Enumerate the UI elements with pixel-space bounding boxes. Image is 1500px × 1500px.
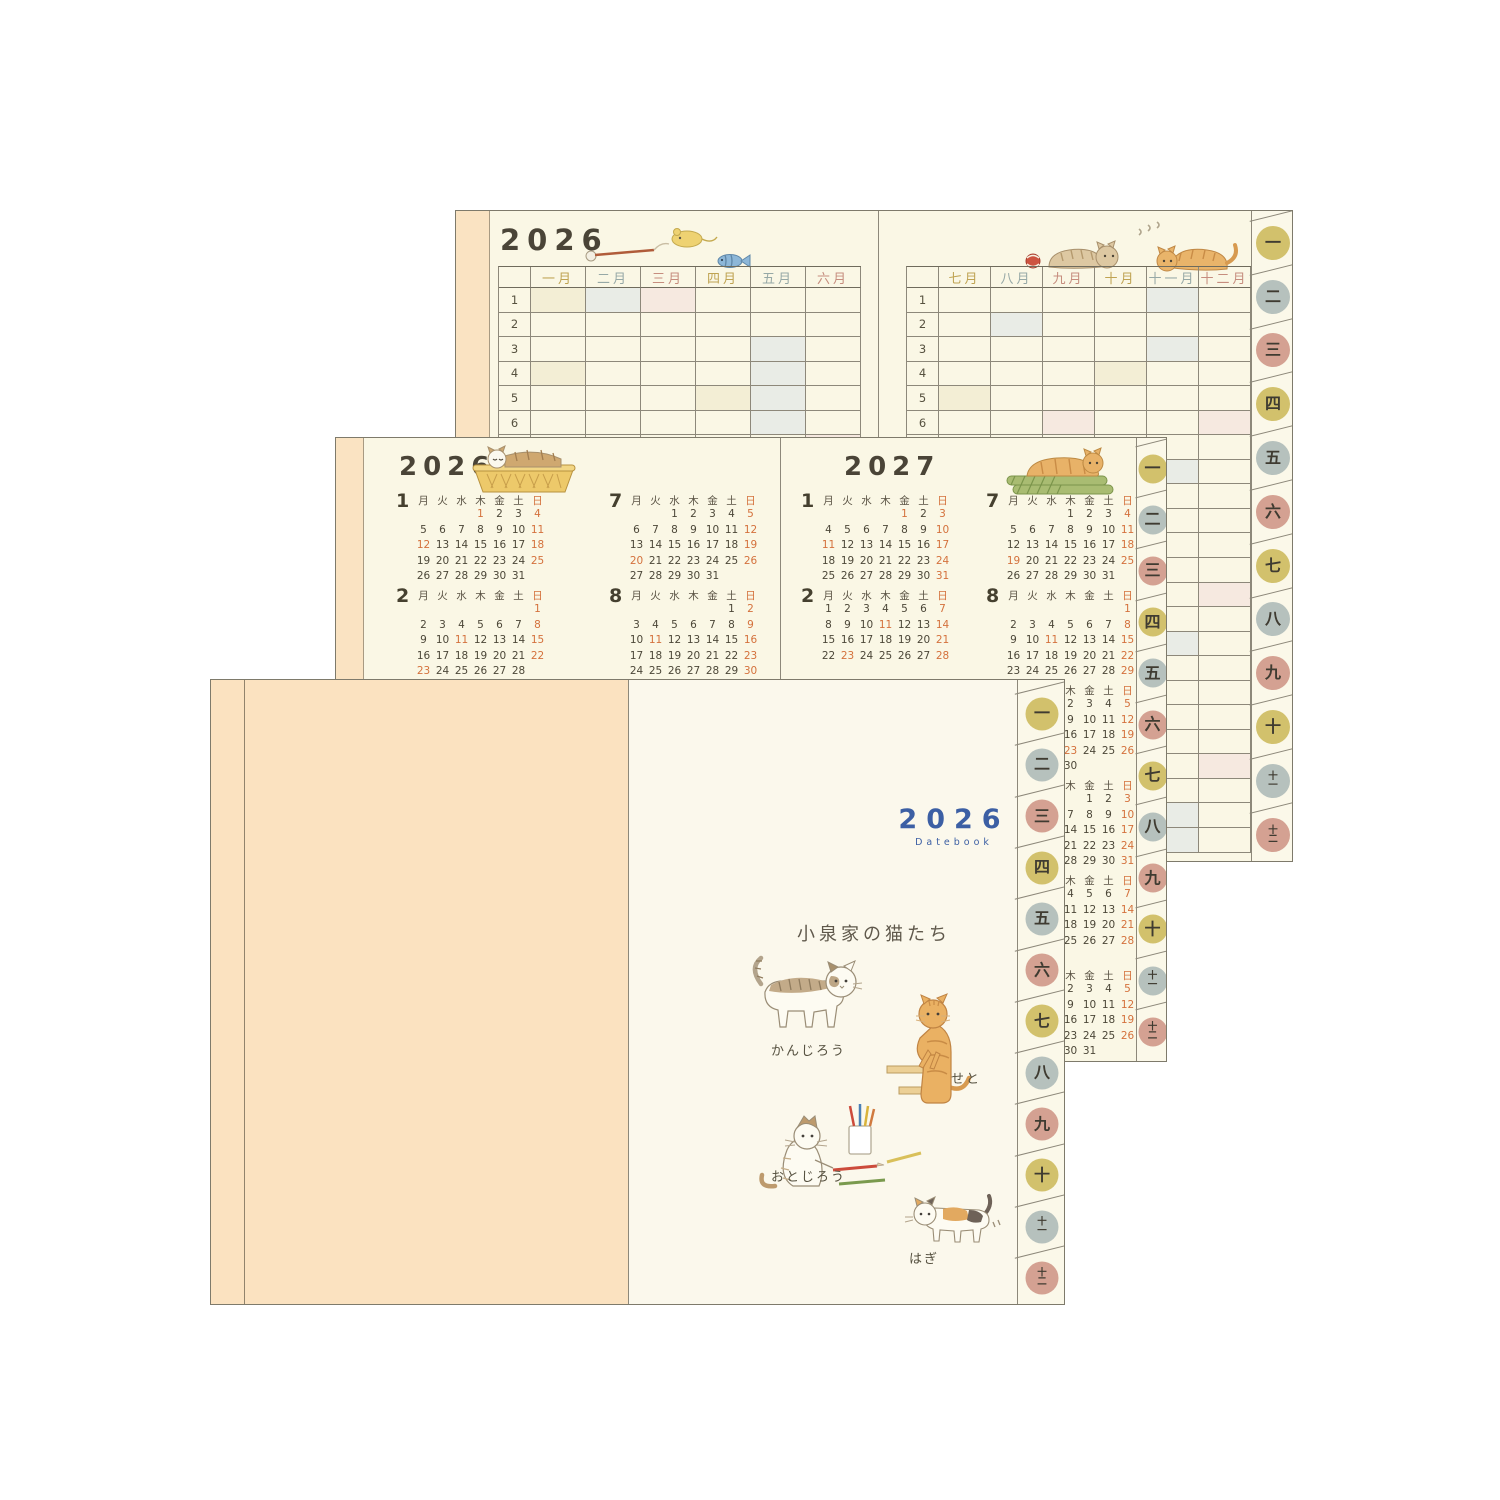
mini-weekday-header: 日 xyxy=(1118,588,1137,603)
mini-date: 28 xyxy=(509,665,528,677)
tab-circle: 八 xyxy=(1256,602,1290,636)
tab-numeral: 二 xyxy=(1144,512,1160,528)
mini-date: 13 xyxy=(490,634,509,646)
year-day-cell xyxy=(696,411,751,436)
index-tab-month-2: 二 xyxy=(1137,494,1167,545)
tab-numeral: 十 xyxy=(1034,1167,1050,1183)
tab-numeral: 二 xyxy=(1265,289,1281,305)
mini-weekday-header: 水 xyxy=(857,588,876,603)
year-day-cell xyxy=(586,313,641,338)
tab-numeral: 二 xyxy=(1268,835,1278,844)
year-day-cell xyxy=(1199,337,1251,362)
mini-date: 27 xyxy=(433,570,452,582)
mini-date: 20 xyxy=(684,650,703,662)
tab-numeral: 十 xyxy=(1265,719,1281,735)
mini-date: 27 xyxy=(627,570,646,582)
mini-date: 1 xyxy=(665,508,684,520)
mini-date: 19 xyxy=(665,650,684,662)
mini-date: 17 xyxy=(1099,539,1118,551)
tab-numeral: 五 xyxy=(1144,665,1160,681)
year-day-cell xyxy=(531,411,586,436)
mini-date: 11 xyxy=(528,524,547,536)
mini-date: 4 xyxy=(1099,983,1118,995)
mini-date: 14 xyxy=(876,539,895,551)
mini-date: 31 xyxy=(1118,855,1137,867)
mini-month-number: 2 xyxy=(801,585,814,607)
year-day-cell xyxy=(1095,362,1147,387)
mini-date: 22 xyxy=(471,555,490,567)
tab-numeral: 五 xyxy=(1034,911,1050,927)
mini-weekday-header: 火 xyxy=(433,493,452,508)
year-day-cell xyxy=(1095,288,1147,313)
month-column-header: 二月 xyxy=(586,267,641,288)
tab-numeral: 八 xyxy=(1144,819,1160,835)
mini-date: 1 xyxy=(1061,508,1080,520)
year-day-cell xyxy=(696,288,751,313)
year-day-cell xyxy=(1199,730,1251,755)
year-day-cell xyxy=(641,362,696,387)
tab-circle: 十一 xyxy=(1138,966,1167,995)
mini-date: 7 xyxy=(452,524,471,536)
tab-numeral: 六 xyxy=(1034,962,1050,978)
tab-circle: 四 xyxy=(1026,851,1059,884)
year-day-cell xyxy=(1043,362,1095,387)
tab-numeral: 九 xyxy=(1265,665,1281,681)
month-column-header: 四月 xyxy=(696,267,751,288)
mini-date: 17 xyxy=(1118,824,1137,836)
mini-date: 2 xyxy=(684,508,703,520)
mini-date: 9 xyxy=(1099,809,1118,821)
day-row-number: 6 xyxy=(499,411,531,436)
mini-date: 25 xyxy=(722,555,741,567)
mini-date: 28 xyxy=(1118,935,1137,947)
cat-hagi-illustration xyxy=(899,1190,1001,1254)
mini-weekday-header: 月 xyxy=(1004,493,1023,508)
mini-weekday-header: 月 xyxy=(414,588,433,603)
mini-date: 12 xyxy=(414,539,433,551)
mini-date: 8 xyxy=(1080,809,1099,821)
mini-date: 22 xyxy=(895,555,914,567)
mini-date: 19 xyxy=(895,634,914,646)
cat-on-mat-illustration xyxy=(1001,446,1119,496)
day-row-number: 1 xyxy=(499,288,531,313)
tab-circle: 五 xyxy=(1026,902,1059,935)
mini-date: 20 xyxy=(490,650,509,662)
tab-numeral: 二 xyxy=(1148,1032,1158,1041)
mini-date: 24 xyxy=(509,555,528,567)
year-day-cell xyxy=(1043,288,1095,313)
mini-date: 3 xyxy=(433,619,452,631)
year-day-cell xyxy=(586,386,641,411)
year-day-cell xyxy=(531,313,586,338)
index-tab-month-3: 三 xyxy=(1252,324,1293,378)
mini-month-number: 7 xyxy=(986,490,999,512)
year-day-cell xyxy=(1199,313,1251,338)
mini-date: 10 xyxy=(1080,714,1099,726)
year-day-cell xyxy=(641,288,696,313)
mini-date: 2 xyxy=(490,508,509,520)
mini-date: 19 xyxy=(838,555,857,567)
mini-date: 8 xyxy=(1061,524,1080,536)
cover-spine-line xyxy=(244,680,245,1304)
mini-month-number: 1 xyxy=(801,490,814,512)
mini-weekday-header: 土 xyxy=(1099,778,1118,793)
mini-weekday-header: 日 xyxy=(1118,493,1137,508)
year-day-cell xyxy=(586,362,641,387)
mini-date: 31 xyxy=(509,570,528,582)
mini-weekday-header: 木 xyxy=(684,588,703,603)
cat-name-seto: せと xyxy=(951,1068,981,1087)
year-day-cell xyxy=(1147,411,1199,436)
mini-date: 10 xyxy=(703,524,722,536)
year-day-cell xyxy=(696,386,751,411)
cat-name-otojiro: おとじろう xyxy=(771,1166,846,1185)
year-day-cell xyxy=(1043,337,1095,362)
year-day-cell xyxy=(1199,484,1251,509)
cover-heading: 小泉家の猫たち xyxy=(789,920,959,946)
mini-weekday-header: 金 xyxy=(490,493,509,508)
tab-circle: 十 xyxy=(1026,1159,1059,1192)
mini-date: 26 xyxy=(838,570,857,582)
mini-date: 12 xyxy=(895,619,914,631)
year-day-cell xyxy=(1095,313,1147,338)
mini-date: 1 xyxy=(722,603,741,615)
mini-date: 5 xyxy=(1118,983,1137,995)
mini-date: 28 xyxy=(1042,570,1061,582)
mini-date: 28 xyxy=(703,665,722,677)
mini-date: 27 xyxy=(914,650,933,662)
mini-date: 3 xyxy=(509,508,528,520)
year-day-cell xyxy=(939,362,991,387)
mini-date: 18 xyxy=(876,634,895,646)
tab-circle: 四 xyxy=(1256,387,1290,421)
mini-date: 6 xyxy=(627,524,646,536)
mini-date: 28 xyxy=(876,570,895,582)
mini-date: 18 xyxy=(452,650,471,662)
mini-weekday-header: 木 xyxy=(471,493,490,508)
mini-weekday-header: 月 xyxy=(1004,588,1023,603)
mini-weekday-header: 火 xyxy=(1023,588,1042,603)
tab-circle: 十二 xyxy=(1256,818,1290,852)
year-day-cell xyxy=(1095,386,1147,411)
mini-date: 11 xyxy=(1118,524,1137,536)
year-day-cell xyxy=(1199,779,1251,804)
mini-date: 12 xyxy=(471,634,490,646)
mini-weekday-header: 金 xyxy=(703,493,722,508)
mini-date: 9 xyxy=(1004,634,1023,646)
year-day-cell xyxy=(1199,803,1251,828)
mini-date: 26 xyxy=(471,665,490,677)
mini-date: 12 xyxy=(838,539,857,551)
mini-date: 12 xyxy=(1004,539,1023,551)
mini-date: 30 xyxy=(490,570,509,582)
mini-weekday-header: 金 xyxy=(895,493,914,508)
mini-date: 7 xyxy=(876,524,895,536)
year-day-cell xyxy=(991,411,1043,436)
mini-weekday-header: 土 xyxy=(722,493,741,508)
mini-date: 27 xyxy=(1099,935,1118,947)
index-tab-month-8: 八 xyxy=(1018,1047,1065,1098)
mini-date: 26 xyxy=(1080,935,1099,947)
mini-date: 8 xyxy=(665,524,684,536)
mini-date: 12 xyxy=(1118,999,1137,1011)
mini-date: 14 xyxy=(452,539,471,551)
mini-date: 4 xyxy=(1099,698,1118,710)
year-day-cell xyxy=(531,386,586,411)
mini-date: 19 xyxy=(471,650,490,662)
mini-date: 9 xyxy=(490,524,509,536)
mini-date: 9 xyxy=(684,524,703,536)
month-column-header: 九月 xyxy=(1043,267,1095,288)
cat-in-basket-illustration xyxy=(463,446,585,496)
mini-date: 15 xyxy=(1061,539,1080,551)
mini-weekday-header: 月 xyxy=(819,493,838,508)
mini-weekday-header: 日 xyxy=(1118,968,1137,983)
mini-date: 29 xyxy=(895,570,914,582)
mini-date: 30 xyxy=(1099,855,1118,867)
mini-date: 27 xyxy=(1080,665,1099,677)
tab-numeral: 九 xyxy=(1144,870,1160,886)
mini-weekday-header: 日 xyxy=(933,493,952,508)
day-row-number: 6 xyxy=(907,411,939,436)
mini-date: 6 xyxy=(433,524,452,536)
mini-month-number: 8 xyxy=(986,585,999,607)
year-day-cell xyxy=(641,386,696,411)
year-day-cell xyxy=(531,288,586,313)
cat-seto-illustration xyxy=(883,992,977,1110)
year-day-cell xyxy=(806,337,861,362)
year-day-cell xyxy=(751,313,806,338)
mini-weekday-header: 土 xyxy=(1099,968,1118,983)
mini-date: 10 xyxy=(857,619,876,631)
index-tab-month-9: 九 xyxy=(1137,853,1167,904)
mini-weekday-header: 水 xyxy=(665,588,684,603)
mini-date: 18 xyxy=(819,555,838,567)
mini-date: 24 xyxy=(1118,840,1137,852)
index-tab-month-2: 二 xyxy=(1252,270,1293,324)
mini-date: 24 xyxy=(627,665,646,677)
index-tab-month-11: 十一 xyxy=(1252,754,1293,808)
mini-date: 2 xyxy=(838,603,857,615)
tab-separator xyxy=(1015,680,1065,694)
mini-date: 25 xyxy=(646,665,665,677)
mini-weekday-header: 日 xyxy=(1118,873,1137,888)
mini-date: 17 xyxy=(933,539,952,551)
month-column-header: 十一月 xyxy=(1147,267,1199,288)
index-tab-month-3: 三 xyxy=(1137,545,1167,596)
mini-date: 10 xyxy=(509,524,528,536)
mini-date: 23 xyxy=(838,650,857,662)
mini-date: 15 xyxy=(819,634,838,646)
mini-date: 20 xyxy=(1099,919,1118,931)
year-day-cell xyxy=(531,362,586,387)
mini-date: 12 xyxy=(741,524,760,536)
mini-date: 22 xyxy=(722,650,741,662)
year-day-cell xyxy=(1147,313,1199,338)
mini-date: 23 xyxy=(414,665,433,677)
mini-date: 15 xyxy=(1118,634,1137,646)
year-day-cell xyxy=(641,313,696,338)
mini-date: 16 xyxy=(914,539,933,551)
mini-date: 25 xyxy=(819,570,838,582)
mini-date: 18 xyxy=(722,539,741,551)
tab-circle: 三 xyxy=(1138,556,1167,585)
mini-weekday-header: 木 xyxy=(1061,493,1080,508)
year-day-cell xyxy=(586,337,641,362)
year-day-cell xyxy=(586,288,641,313)
mini-date: 14 xyxy=(646,539,665,551)
mini-date: 7 xyxy=(509,619,528,631)
mini-date: 23 xyxy=(1080,555,1099,567)
mini-date: 29 xyxy=(665,570,684,582)
mini-weekday-header: 土 xyxy=(1099,683,1118,698)
mini-date: 19 xyxy=(1004,555,1023,567)
mini-date: 14 xyxy=(509,634,528,646)
mini-date: 22 xyxy=(528,650,547,662)
year-day-cell xyxy=(751,288,806,313)
mini-date: 31 xyxy=(1099,570,1118,582)
mini-weekday-header: 金 xyxy=(490,588,509,603)
mini-date: 10 xyxy=(433,634,452,646)
mini-date: 25 xyxy=(528,555,547,567)
year-day-cell xyxy=(1095,411,1147,436)
mini-date: 29 xyxy=(1118,665,1137,677)
tab-numeral: 三 xyxy=(1265,342,1281,358)
year-day-cell xyxy=(1199,632,1251,657)
mini-date: 15 xyxy=(665,539,684,551)
tab-circle: 九 xyxy=(1256,656,1290,690)
cat-name-hagi: はぎ xyxy=(909,1248,939,1267)
mini-date: 24 xyxy=(1099,555,1118,567)
tab-circle: 十二 xyxy=(1138,1017,1167,1046)
mini-date: 13 xyxy=(627,539,646,551)
day-row-number: 4 xyxy=(907,362,939,387)
mini-weekday-header: 水 xyxy=(452,493,471,508)
mini-date: 6 xyxy=(1080,619,1099,631)
mini-weekday-header: 木 xyxy=(471,588,490,603)
tab-circle: 四 xyxy=(1138,608,1167,637)
tab-numeral: 一 xyxy=(1034,706,1050,722)
tab-circle: 九 xyxy=(1138,864,1167,893)
tab-circle: 二 xyxy=(1138,505,1167,534)
two-cats-illustration xyxy=(1021,219,1239,273)
mini-date: 30 xyxy=(914,570,933,582)
tab-circle: 十二 xyxy=(1026,1261,1059,1294)
index-tab-month-7: 七 xyxy=(1018,996,1065,1047)
mini-weekday-header: 金 xyxy=(895,588,914,603)
mini-date: 30 xyxy=(684,570,703,582)
mini-date: 16 xyxy=(741,634,760,646)
mini-date: 31 xyxy=(933,570,952,582)
mini-weekday-header: 水 xyxy=(1042,493,1061,508)
year-day-cell xyxy=(641,411,696,436)
tab-circle: 七 xyxy=(1138,761,1167,790)
tab-separator xyxy=(1249,210,1293,222)
mini-date: 22 xyxy=(665,555,684,567)
mini-date: 12 xyxy=(1118,714,1137,726)
day-row-number: 4 xyxy=(499,362,531,387)
mini-date: 15 xyxy=(528,634,547,646)
tab-numeral: 七 xyxy=(1034,1013,1050,1029)
mini-date: 22 xyxy=(1080,840,1099,852)
mini-date: 31 xyxy=(1080,1045,1099,1057)
year-day-cell xyxy=(1199,288,1251,313)
mini-weekday-header: 土 xyxy=(1099,873,1118,888)
mini-date: 6 xyxy=(914,603,933,615)
cover-title: 2026 Datebook xyxy=(879,804,1029,848)
mini-date: 17 xyxy=(627,650,646,662)
mini-date: 27 xyxy=(1023,570,1042,582)
index-tab-month-12: 十二 xyxy=(1018,1252,1065,1303)
mini-date: 10 xyxy=(1099,524,1118,536)
index-tab-month-9: 九 xyxy=(1018,1098,1065,1149)
mini-date: 26 xyxy=(1004,570,1023,582)
mini-date: 10 xyxy=(933,524,952,536)
mini-weekday-header: 火 xyxy=(1023,493,1042,508)
mini-date: 2 xyxy=(1099,793,1118,805)
mini-weekday-header: 木 xyxy=(684,493,703,508)
year-table-corner xyxy=(499,267,531,288)
month-column-header: 十月 xyxy=(1095,267,1147,288)
mini-date: 3 xyxy=(1080,698,1099,710)
mini-date: 26 xyxy=(1118,745,1137,757)
mini-weekday-header: 日 xyxy=(741,588,760,603)
mini-date: 11 xyxy=(1099,999,1118,1011)
year-day-cell xyxy=(751,386,806,411)
year-day-cell xyxy=(991,313,1043,338)
mini-date: 8 xyxy=(819,619,838,631)
month-column-header: 五月 xyxy=(751,267,806,288)
index-tab-month-10: 十 xyxy=(1137,904,1167,955)
mini-date: 13 xyxy=(857,539,876,551)
tab-circle: 八 xyxy=(1138,812,1167,841)
mini-date: 26 xyxy=(1118,1030,1137,1042)
tab-numeral: 四 xyxy=(1034,860,1050,876)
mini-date: 13 xyxy=(1023,539,1042,551)
mini-weekday-header: 火 xyxy=(838,588,857,603)
mini-date: 11 xyxy=(646,634,665,646)
tab-numeral: 一 xyxy=(1144,461,1160,477)
mini-date: 1 xyxy=(895,508,914,520)
mini-date: 22 xyxy=(819,650,838,662)
mini-date: 21 xyxy=(1118,919,1137,931)
year-day-cell xyxy=(939,411,991,436)
month-index-tabs: 一二三四五六七八九十十一十二 xyxy=(1017,680,1065,1304)
mini-date: 19 xyxy=(1061,650,1080,662)
cat-toys-illustration xyxy=(584,225,754,271)
month-index-tabs: 一二三四五六七八九十十一十二 xyxy=(1136,438,1167,1061)
mini-date: 11 xyxy=(722,524,741,536)
mini-date: 17 xyxy=(703,539,722,551)
mini-date: 24 xyxy=(1080,1030,1099,1042)
year-day-cell xyxy=(1147,288,1199,313)
index-tab-month-1: 一 xyxy=(1018,688,1065,739)
year-day-cell xyxy=(1199,583,1251,608)
month-column-header: 八月 xyxy=(991,267,1043,288)
day-row-number: 3 xyxy=(499,337,531,362)
mini-date: 14 xyxy=(1042,539,1061,551)
mini-date: 24 xyxy=(1023,665,1042,677)
mini-weekday-header: 日 xyxy=(933,588,952,603)
tab-circle: 三 xyxy=(1026,800,1059,833)
mini-date: 30 xyxy=(1080,570,1099,582)
tab-circle: 六 xyxy=(1138,710,1167,739)
mini-date: 23 xyxy=(490,555,509,567)
mini-date: 20 xyxy=(433,555,452,567)
mini-date: 26 xyxy=(665,665,684,677)
index-tab-month-6: 六 xyxy=(1252,485,1293,539)
mini-date: 19 xyxy=(1080,919,1099,931)
